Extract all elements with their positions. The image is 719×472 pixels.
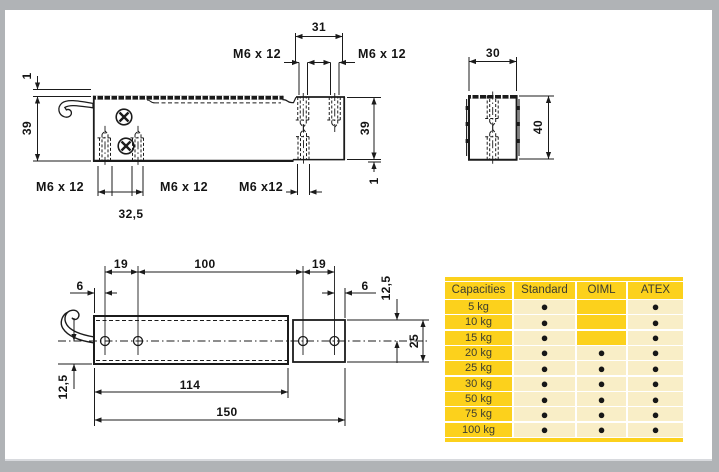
table-top-border (445, 277, 683, 281)
standard-dot-cell: ● (514, 407, 575, 421)
cable (59, 101, 93, 118)
standard-dot-cell: ● (514, 377, 575, 391)
table-row: 10 kg ● ● (445, 315, 683, 329)
screw-icon (116, 109, 132, 125)
header-standard: Standard (514, 282, 575, 299)
atex-dot-cell: ● (628, 407, 683, 421)
atex-dot-cell: ● (628, 331, 683, 345)
table-row: 20 kg ● ● ● (445, 346, 683, 360)
oiml-dot-cell (577, 300, 626, 314)
table-header-row: Capacities Standard OIML ATEX (445, 282, 683, 299)
oiml-dot-cell: ● (577, 423, 626, 437)
standard-dot-cell: ● (514, 300, 575, 314)
oiml-dot-cell (577, 315, 626, 329)
dimension-arrows (71, 269, 425, 422)
table-row: 30 kg ● ● ● (445, 377, 683, 391)
capacity-cell: 30 kg (445, 377, 512, 391)
header-capacities: Capacities (445, 282, 512, 299)
atex-dot-cell: ● (628, 300, 683, 314)
cable (61, 313, 94, 343)
atex-dot-cell: ● (628, 346, 683, 360)
table-row: 25 kg ● ● ● (445, 361, 683, 375)
standard-dot-cell: ● (514, 361, 575, 375)
capacity-cell: 15 kg (445, 331, 512, 345)
oiml-dot-cell: ● (577, 407, 626, 421)
table-row: 50 kg ● ● ● (445, 392, 683, 406)
table-row: 15 kg ● ● (445, 331, 683, 345)
standard-dot-cell: ● (514, 346, 575, 360)
table-row: 75 kg ● ● ● (445, 407, 683, 421)
standard-dot-cell: ● (514, 392, 575, 406)
capacity-cell: 10 kg (445, 315, 512, 329)
oiml-dot-cell: ● (577, 346, 626, 360)
standard-dot-cell: ● (514, 423, 575, 437)
screw-icon (118, 138, 134, 154)
dimension-arrows (35, 34, 377, 195)
standard-dot-cell: ● (514, 331, 575, 345)
oiml-dot-cell: ● (577, 392, 626, 406)
atex-dot-cell: ● (628, 392, 683, 406)
oiml-dot-cell: ● (577, 377, 626, 391)
datasheet-panel: 31 M6 x 12 M6 x 12 1 39 39 1 M6 x 12 M6 … (0, 0, 719, 472)
capacity-cell: 75 kg (445, 407, 512, 421)
cable (65, 310, 94, 337)
capacity-table: Capacities Standard OIML ATEX 5 kg ● ● 1… (445, 277, 683, 442)
capacity-cell: 50 kg (445, 392, 512, 406)
table-row: 5 kg ● ● (445, 300, 683, 314)
end-view (466, 57, 554, 165)
atex-dot-cell: ● (628, 315, 683, 329)
capacity-cell: 100 kg (445, 423, 512, 437)
table-row: 100 kg ● ● ● (445, 423, 683, 437)
header-atex: ATEX (628, 282, 683, 299)
atex-dot-cell: ● (628, 361, 683, 375)
atex-dot-cell: ● (628, 377, 683, 391)
capacity-cell: 20 kg (445, 346, 512, 360)
capacity-cell: 5 kg (445, 300, 512, 314)
standard-dot-cell: ● (514, 315, 575, 329)
table-bottom-border (445, 438, 683, 442)
header-oiml: OIML (577, 282, 626, 299)
oiml-dot-cell: ● (577, 361, 626, 375)
top-view (58, 266, 429, 426)
atex-dot-cell: ● (628, 423, 683, 437)
oiml-dot-cell (577, 331, 626, 345)
side-view (33, 33, 381, 196)
capacity-cell: 25 kg (445, 361, 512, 375)
